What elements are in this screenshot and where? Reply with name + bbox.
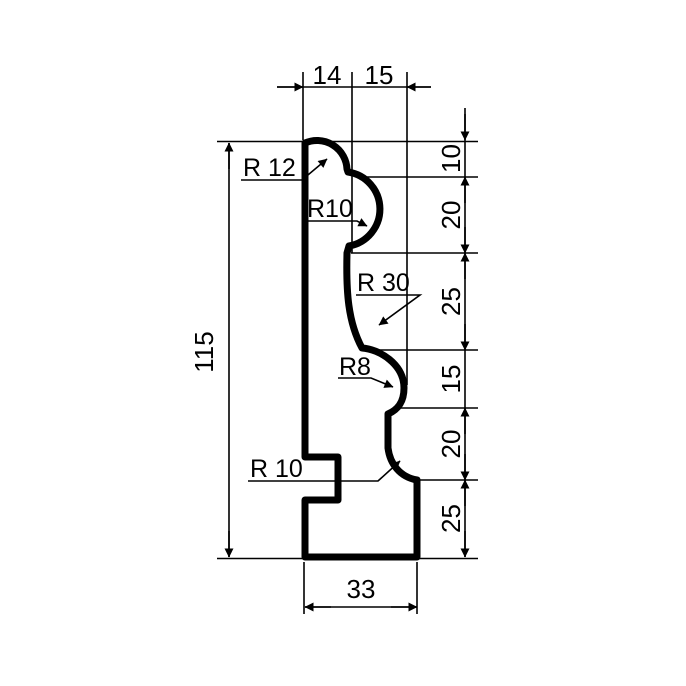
dim-label-right-20b: 20 xyxy=(436,430,466,459)
drawing-svg: 14 15 115 10 20 25 15 20 25 33 R 12 R10 … xyxy=(0,0,686,686)
radius-label-r8: R8 xyxy=(339,353,371,381)
leader-r30 xyxy=(356,295,420,325)
dim-label-right-25b: 25 xyxy=(436,504,466,533)
dim-label-bottom-33: 33 xyxy=(347,574,376,604)
dim-label-right-25a: 25 xyxy=(436,287,466,316)
radius-label-r12: R 12 xyxy=(243,154,296,182)
dim-label-right-10: 10 xyxy=(436,144,466,173)
radius-label-r10-top: R10 xyxy=(307,195,353,223)
radius-label-r30: R 30 xyxy=(357,269,410,297)
dim-label-left-115: 115 xyxy=(189,331,219,372)
dim-label-right-15: 15 xyxy=(436,365,466,394)
dim-label-top-14: 14 xyxy=(313,60,342,90)
radius-label-r10-bottom: R 10 xyxy=(250,455,303,483)
molding-profile-drawing: 14 15 115 10 20 25 15 20 25 33 R 12 R10 … xyxy=(0,0,686,686)
dim-label-top-15: 15 xyxy=(365,60,394,90)
dim-label-right-20a: 20 xyxy=(436,201,466,230)
